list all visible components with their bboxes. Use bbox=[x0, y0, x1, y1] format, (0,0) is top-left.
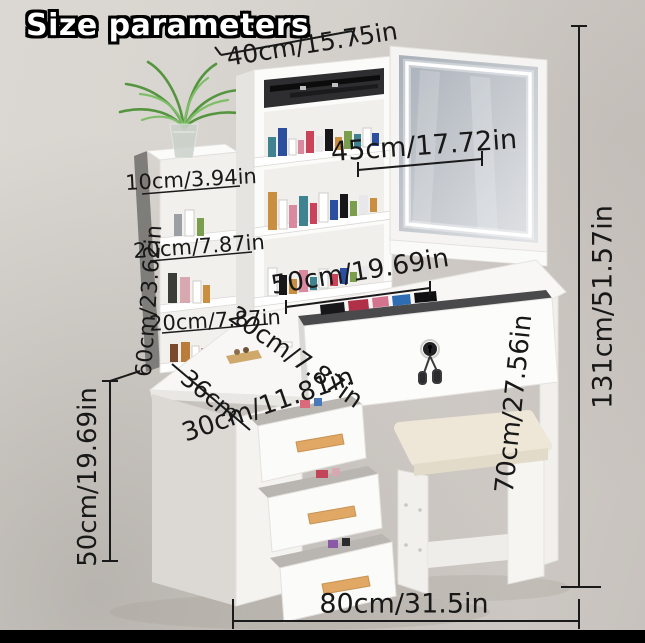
infographic-title: Size parameters bbox=[26, 8, 309, 43]
lock-icon bbox=[421, 340, 439, 358]
bottom-black-bar bbox=[0, 630, 645, 643]
dim-cabinet-height: 50cm/19.69in bbox=[75, 387, 101, 567]
dim-total-width: 80cm/31.5in bbox=[319, 591, 488, 618]
potted-fern-plant bbox=[120, 62, 244, 158]
dim-total-height: 131cm/51.57in bbox=[590, 205, 617, 409]
size-parameters-infographic: Size parameters 40cm/15.75in 45cm/17.72i… bbox=[0, 0, 645, 643]
vanity-stool bbox=[398, 416, 548, 594]
